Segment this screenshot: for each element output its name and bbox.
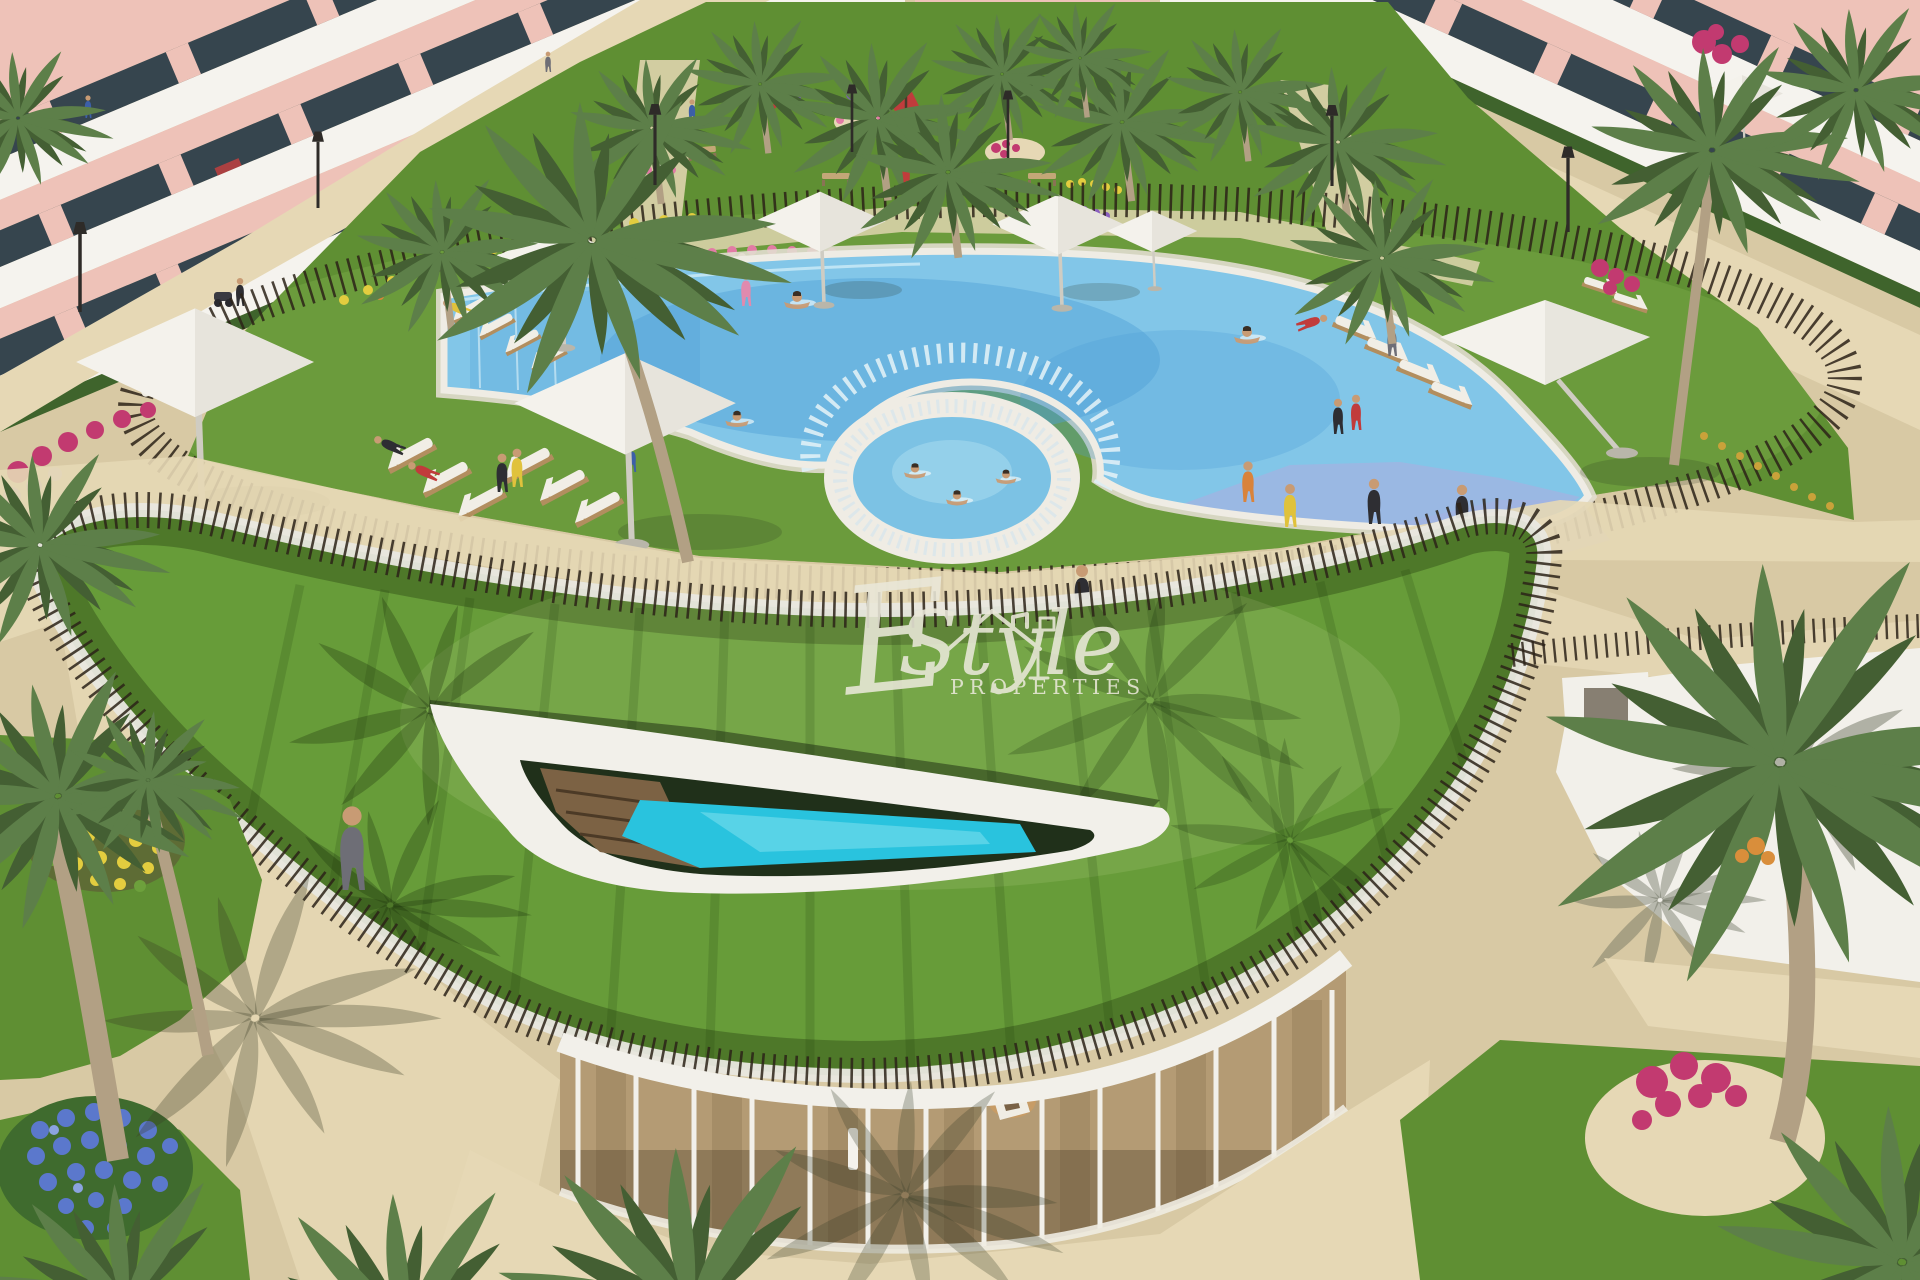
resort-aerial-render: E Style PROPERTIES (0, 0, 1920, 1280)
brand-caption-text: PROPERTIES (950, 675, 1146, 699)
kids-pool (824, 392, 1080, 564)
